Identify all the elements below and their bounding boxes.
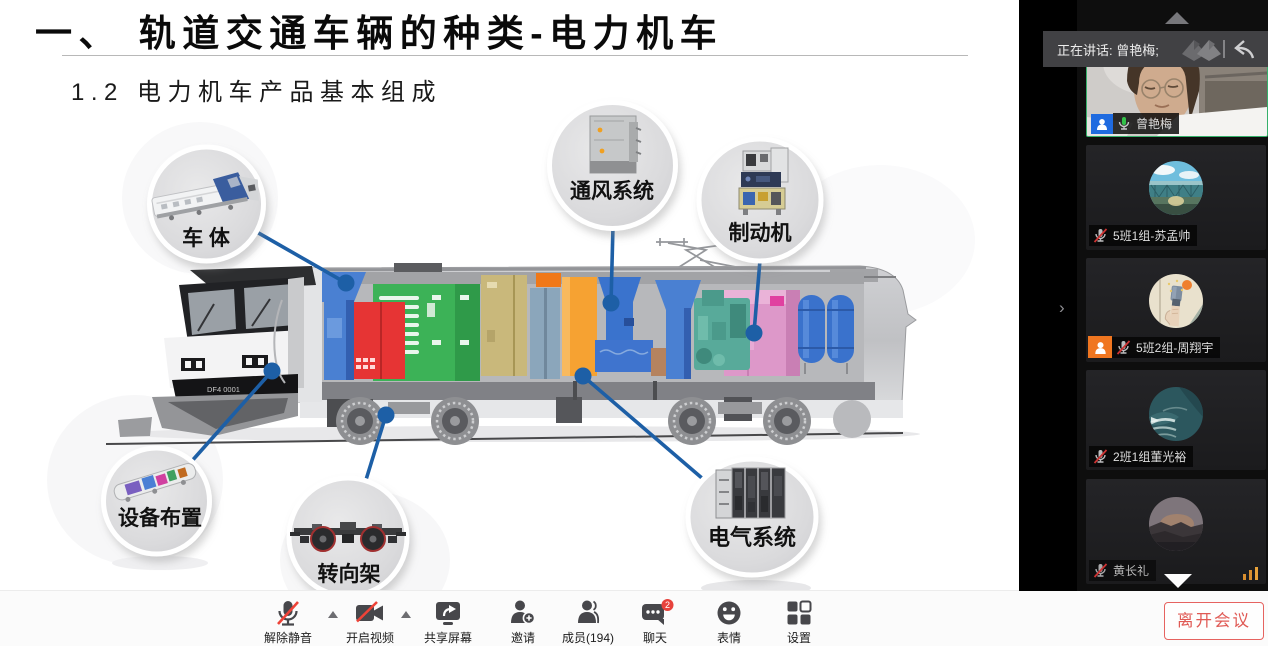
svg-text:制动机: 制动机 xyxy=(729,221,792,245)
svg-text:电气系统: 电气系统 xyxy=(708,525,796,550)
svg-text:DF4 0001: DF4 0001 xyxy=(207,385,240,394)
svg-text:车 体: 车 体 xyxy=(182,226,231,250)
svg-text:通风系统: 通风系统 xyxy=(570,179,654,203)
svg-text:设备布置: 设备布置 xyxy=(118,506,202,530)
svg-text:转向架: 转向架 xyxy=(318,562,381,586)
svg-text:2: 2 xyxy=(665,600,670,610)
